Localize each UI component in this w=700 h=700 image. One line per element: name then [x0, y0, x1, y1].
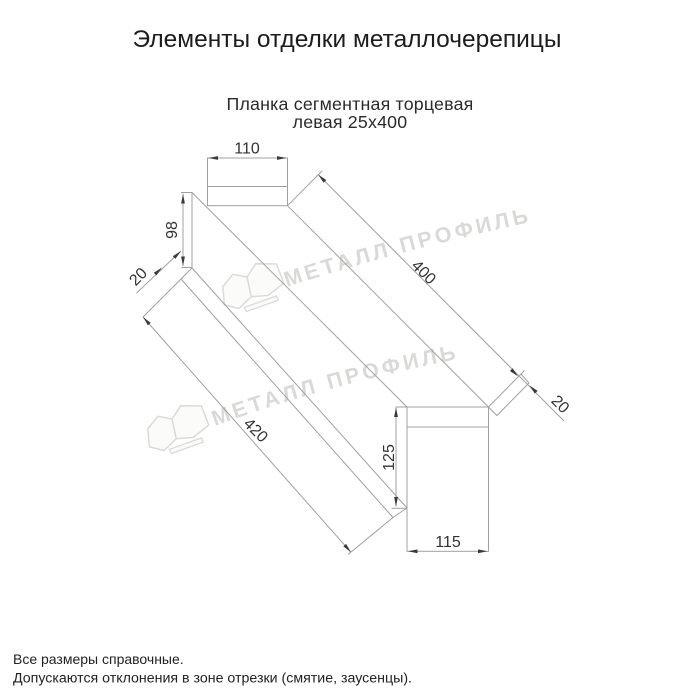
svg-text:125: 125	[381, 444, 398, 471]
svg-text:110: 110	[234, 141, 260, 158]
svg-text:Планка сегментная торцевая: Планка сегментная торцевая	[226, 94, 473, 114]
svg-text:98: 98	[164, 221, 181, 239]
svg-text:Все размеры справочные.: Все размеры справочные.	[13, 651, 184, 667]
svg-text:Элементы отделки металлочерепи: Элементы отделки металлочерепицы	[133, 26, 562, 53]
svg-text:левая 25х400: левая 25х400	[293, 112, 408, 132]
svg-text:115: 115	[435, 534, 461, 551]
svg-text:Допускаются отклонения в зоне: Допускаются отклонения в зоне отрезки (с…	[13, 671, 412, 687]
